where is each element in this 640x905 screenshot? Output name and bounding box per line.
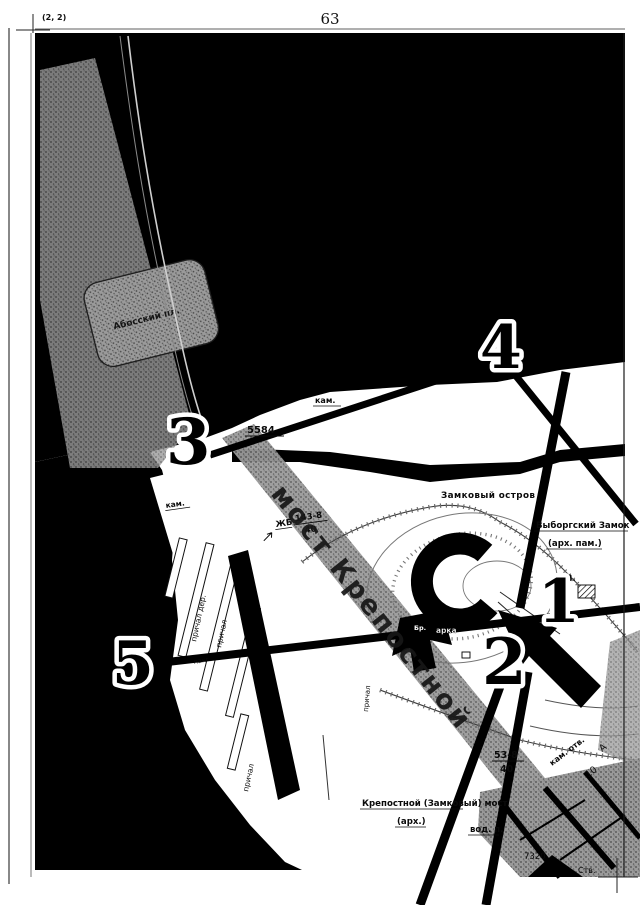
label-castle-name: Выборгский Замок [536,520,630,531]
label-kam-top: кам. [315,396,335,405]
label-br: Бр. [414,624,426,632]
margin-coord-label: (2, 2) [42,13,66,22]
label-castle-note: (арх. пам.) [548,539,602,549]
page-number: 63 [320,10,339,28]
label-frac2-num: 53-8 [494,750,518,761]
marker-2: 2 [482,625,527,700]
marker-4: 4 [480,313,522,383]
marker-3: 3 [166,405,211,480]
marker-1: 1 [538,567,580,637]
label-7320: 7320 [524,852,546,862]
label-5584: 5584 [247,425,275,436]
label-arka: арка [436,626,457,635]
map-canvas: Абосский пл. [0,0,640,905]
hatched-building [578,585,595,598]
label-island: Замковый остров [441,491,535,501]
marker-5: 5 [112,629,154,699]
label-bottom-bridge-2: (арх.) [397,817,426,827]
label-vod-p: вод. п. [470,825,503,835]
label-bottom-bridge-1: Крепостной (Замковый) мост [362,799,508,809]
scanned-map-page: Абосский пл. [0,0,640,905]
label-stv: Ств. [578,866,596,875]
label-frac2-den: 40 [500,764,514,775]
